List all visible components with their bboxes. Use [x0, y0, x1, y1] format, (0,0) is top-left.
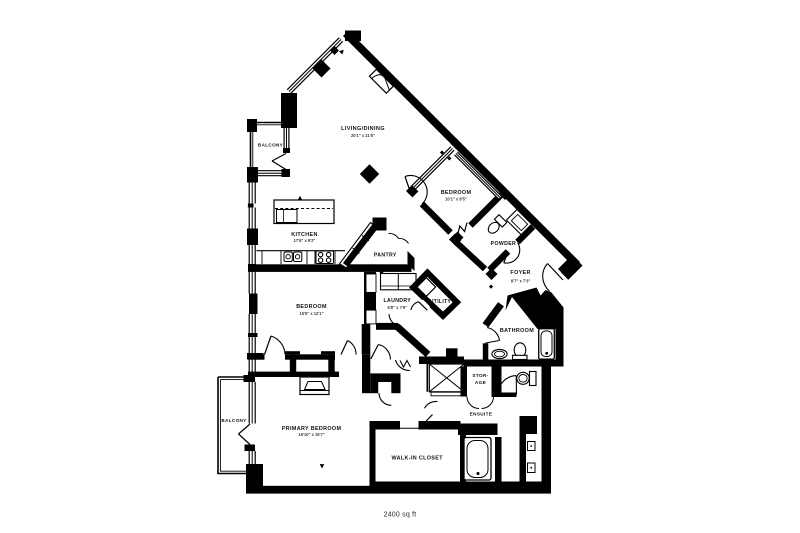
- svg-text:16'10" x 15'7": 16'10" x 15'7": [298, 432, 324, 437]
- svg-text:8'7" x 7'3": 8'7" x 7'3": [511, 279, 531, 284]
- svg-text:BEDROOM: BEDROOM: [441, 190, 472, 196]
- svg-text:20'1" x 21'5": 20'1" x 21'5": [351, 133, 375, 138]
- svg-text:17'6" x 9'2": 17'6" x 9'2": [294, 238, 316, 243]
- svg-text:BEDROOM: BEDROOM: [296, 304, 327, 310]
- svg-text:10'1" x 8'5": 10'1" x 8'5": [445, 197, 467, 202]
- svg-text:FOYER: FOYER: [510, 270, 530, 276]
- svg-text:2400 sq ft: 2400 sq ft: [384, 512, 417, 519]
- svg-text:PANTRY: PANTRY: [374, 253, 397, 259]
- svg-text:AGE: AGE: [475, 380, 486, 385]
- svg-text:WALK-IN CLOSET: WALK-IN CLOSET: [392, 455, 444, 461]
- svg-text:UTILITY: UTILITY: [430, 299, 452, 305]
- svg-text:6'8" x 7'9": 6'8" x 7'9": [388, 305, 408, 310]
- svg-text:STOR-: STOR-: [472, 373, 488, 378]
- svg-text:POWDER: POWDER: [491, 241, 516, 247]
- svg-text:BALCONY: BALCONY: [258, 142, 283, 147]
- svg-text:BATHROOM: BATHROOM: [500, 328, 534, 334]
- svg-text:BALCONY: BALCONY: [221, 418, 246, 423]
- svg-text:15'5" x 12'1": 15'5" x 12'1": [299, 311, 323, 316]
- svg-text:LAUNDRY: LAUNDRY: [383, 298, 411, 304]
- svg-text:LIVING/DINING: LIVING/DINING: [341, 126, 385, 132]
- svg-text:ENSUITE: ENSUITE: [470, 411, 493, 416]
